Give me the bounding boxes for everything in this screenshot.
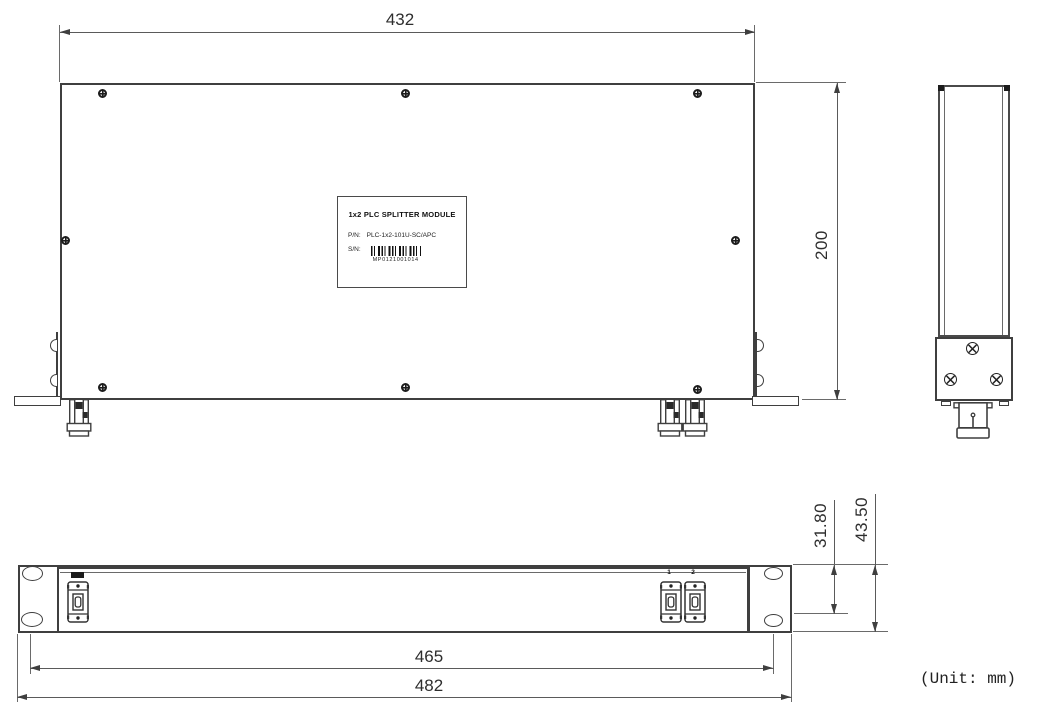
screw-icon [966, 342, 979, 355]
arrowhead-icon [834, 390, 840, 400]
arrowhead-icon [872, 565, 878, 575]
screw-icon [693, 385, 702, 394]
fiber-adapter-icon [66, 399, 92, 437]
screw-icon [401, 383, 410, 392]
extension-line [756, 82, 846, 83]
panel-inner-line [1002, 87, 1003, 335]
arrowhead-icon [831, 565, 837, 575]
dimension-value: 31.80 [811, 491, 831, 559]
pn-value: PLC-1x2-101U-SC/APC [367, 232, 436, 239]
side-view-body [938, 85, 1010, 337]
unit-note: (Unit: mm) [908, 670, 1028, 688]
screw-icon [693, 89, 702, 98]
extension-line [17, 634, 18, 702]
sc-adapter-icon [67, 581, 89, 623]
arrowhead-icon [17, 694, 27, 700]
screw-icon [98, 383, 107, 392]
dimension-line [837, 83, 838, 400]
corner-block [1004, 85, 1010, 91]
screw-icon [731, 236, 740, 245]
mounting-slot [764, 614, 783, 627]
bracket-stud [757, 374, 764, 387]
extension-line [791, 634, 792, 702]
arrowhead-icon [834, 83, 840, 93]
dimension-line [17, 697, 792, 698]
product-label-pn-row: P/N: PLC-1x2-101U-SC/APC [338, 232, 466, 239]
screw-icon [98, 89, 107, 98]
bracket-foot [14, 396, 61, 406]
mounting-slot [22, 566, 43, 581]
arrowhead-icon [831, 604, 837, 614]
panel-inner-line [944, 87, 945, 335]
dimension-value: 482 [384, 676, 474, 696]
dimension-line [30, 668, 774, 669]
product-label-sn-row: S/N: MP0121001014 [338, 246, 466, 263]
dimension-value: 465 [384, 647, 474, 667]
sc-adapter-icon [660, 581, 682, 623]
sn-block: MP0121001014 [371, 246, 421, 263]
pn-label: P/N: [348, 232, 361, 239]
engineering-drawing: 1x2 PLC SPLITTER MODULE P/N: PLC-1x2-101… [0, 0, 1037, 715]
panel-inner-line [60, 572, 746, 573]
extension-line [794, 613, 848, 614]
mounting-slot [764, 567, 783, 580]
port-number: 2 [688, 569, 698, 576]
bracket-foot [752, 396, 799, 406]
dimension-value: 200 [812, 214, 832, 276]
arrowhead-icon [872, 622, 878, 632]
product-label: 1x2 PLC SPLITTER MODULE P/N: PLC-1x2-101… [337, 196, 467, 288]
sn-label: S/N: [348, 246, 361, 253]
dimension-line [60, 32, 755, 33]
port-label-sticker [71, 572, 84, 578]
arrowhead-icon [60, 29, 70, 35]
arrowhead-icon [745, 29, 755, 35]
dimension-line [834, 500, 835, 614]
sc-adapter-icon [684, 581, 706, 623]
bracket-stud [50, 374, 57, 387]
front-panel-band [57, 565, 749, 633]
dimension-value: 432 [357, 10, 443, 30]
screw-icon [401, 89, 410, 98]
fiber-adapter-icon [682, 399, 708, 437]
arrowhead-icon [30, 665, 40, 671]
mounting-slot [21, 612, 43, 627]
fiber-adapter-side-icon [950, 402, 996, 440]
sn-value: MP0121001014 [371, 257, 421, 263]
fiber-adapter-icon [657, 399, 683, 437]
bracket-stud [50, 339, 57, 352]
screw-icon [944, 373, 957, 386]
plate-lip [999, 401, 1009, 406]
bracket-stud [757, 339, 764, 352]
corner-block [938, 85, 944, 91]
screw-icon [61, 236, 70, 245]
dimension-line [875, 494, 876, 632]
dimension-value: 43.50 [852, 485, 872, 553]
arrowhead-icon [763, 665, 773, 671]
product-label-title: 1x2 PLC SPLITTER MODULE [338, 210, 466, 219]
screw-icon [990, 373, 1003, 386]
barcode [371, 246, 421, 256]
arrowhead-icon [781, 694, 791, 700]
port-number: 1 [664, 569, 674, 576]
